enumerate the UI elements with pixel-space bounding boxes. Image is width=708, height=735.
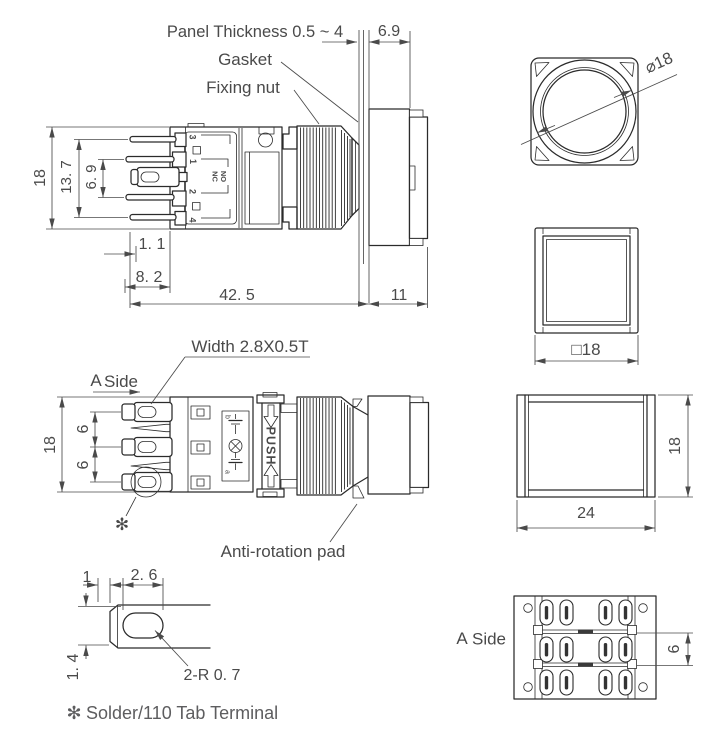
footnote-mark: ✻ bbox=[66, 703, 81, 723]
height-dim: 18 bbox=[32, 169, 49, 187]
side-view-top: 3 1 NO NC 2 4 bbox=[126, 30, 428, 302]
rear-view: A Side 6 bbox=[456, 596, 693, 699]
contact-a-marking: a bbox=[224, 470, 231, 474]
head-length-dim: 11 bbox=[391, 287, 408, 304]
pin3-marking: 3 bbox=[188, 134, 198, 139]
terminal-detail: 1 2. 6 1. 4 2-R 0. 7 bbox=[65, 567, 241, 684]
a-side-label-side: Side bbox=[104, 372, 138, 391]
height-dim: 18 bbox=[42, 436, 59, 454]
side-view-a: b a PUSH bbox=[115, 393, 429, 535]
side-view-back: 18 24 bbox=[517, 395, 693, 532]
press-direction-up-icon bbox=[264, 465, 278, 488]
pitch-upper-dim: 6 bbox=[75, 424, 92, 433]
pin-inset-dim: 8. 2 bbox=[136, 269, 163, 286]
hole-width-dim: 2. 6 bbox=[131, 567, 158, 584]
fixing-nut-ribs bbox=[301, 398, 351, 494]
contact-b-marking: b bbox=[224, 415, 231, 419]
hole-height-dim: 1. 4 bbox=[65, 654, 82, 681]
tab-terminals bbox=[122, 403, 172, 492]
anti-rotation-callout: Anti-rotation pad bbox=[221, 542, 346, 561]
pin-span-dim: 13. 7 bbox=[58, 160, 75, 193]
a-side-label-side: Side bbox=[472, 630, 506, 649]
front-view-round: ⌀18 bbox=[521, 49, 677, 165]
pitch-lower-dim: 6 bbox=[75, 460, 92, 469]
front-view-square: □18 bbox=[535, 228, 638, 365]
terminal-slots bbox=[540, 600, 632, 695]
pin1-marking: 1 bbox=[188, 159, 198, 164]
pin4-marking: 4 bbox=[188, 217, 198, 222]
pin-pitch-dim: 6. 9 bbox=[83, 164, 100, 189]
a-side-label-a: A bbox=[90, 371, 102, 390]
fixing-nut-ribs bbox=[301, 128, 351, 229]
pin-offset-dim: 1. 1 bbox=[139, 236, 166, 253]
pushbutton-switch-drawing: 3 1 NO NC 2 4 Panel Thickness 0.5 ~ 4 Ga… bbox=[0, 0, 708, 735]
footnote: ✻ Solder/110 Tab Terminal bbox=[66, 703, 278, 723]
press-direction-down-icon bbox=[264, 405, 278, 428]
terminal-width-callout: Width 2.8X0.5T bbox=[191, 337, 308, 356]
side-view-top-dimensions: Panel Thickness 0.5 ~ 4 Gasket Fixing nu… bbox=[32, 23, 428, 308]
panel-thickness-callout: Panel Thickness 0.5 ~ 4 bbox=[167, 23, 343, 41]
footnote-mark: ✻ bbox=[115, 515, 129, 534]
width-dim: 24 bbox=[577, 505, 595, 522]
push-marking: PUSH bbox=[264, 427, 278, 466]
body-length-dim: 42. 5 bbox=[219, 287, 255, 304]
nc-marking: NC bbox=[211, 171, 220, 182]
pitch-dim: 6 bbox=[666, 644, 683, 653]
technical-drawing-page: 3 1 NO NC 2 4 Panel Thickness 0.5 ~ 4 Ga… bbox=[0, 0, 708, 735]
diameter-dim: ⌀18 bbox=[642, 49, 675, 77]
footnote-text: Solder/110 Tab Terminal bbox=[86, 703, 278, 723]
anti-rotation-pad-shape bbox=[353, 486, 364, 498]
pin2-marking: 2 bbox=[188, 189, 198, 194]
square-size-dim: □18 bbox=[571, 340, 600, 359]
protrusion-dim: 6.9 bbox=[378, 23, 400, 40]
height-dim: 18 bbox=[667, 437, 684, 455]
offset-dim: 1 bbox=[83, 569, 92, 586]
radius-callout: 2-R 0. 7 bbox=[184, 667, 241, 684]
fixing-nut-callout: Fixing nut bbox=[206, 78, 280, 97]
gasket-callout: Gasket bbox=[218, 50, 272, 69]
a-side-label-a: A bbox=[456, 629, 468, 648]
